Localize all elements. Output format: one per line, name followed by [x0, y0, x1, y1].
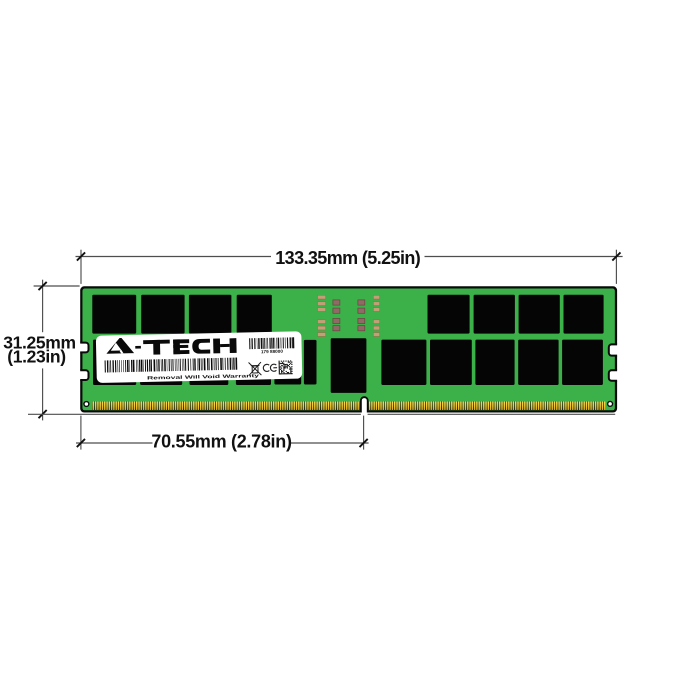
svg-text:179 88000: 179 88000: [261, 349, 284, 354]
svg-text:133.35mm (5.25in): 133.35mm (5.25in): [275, 248, 420, 268]
svg-text:70.55mm (2.78in): 70.55mm (2.78in): [151, 431, 292, 451]
svg-text:(1.23in): (1.23in): [7, 347, 65, 367]
